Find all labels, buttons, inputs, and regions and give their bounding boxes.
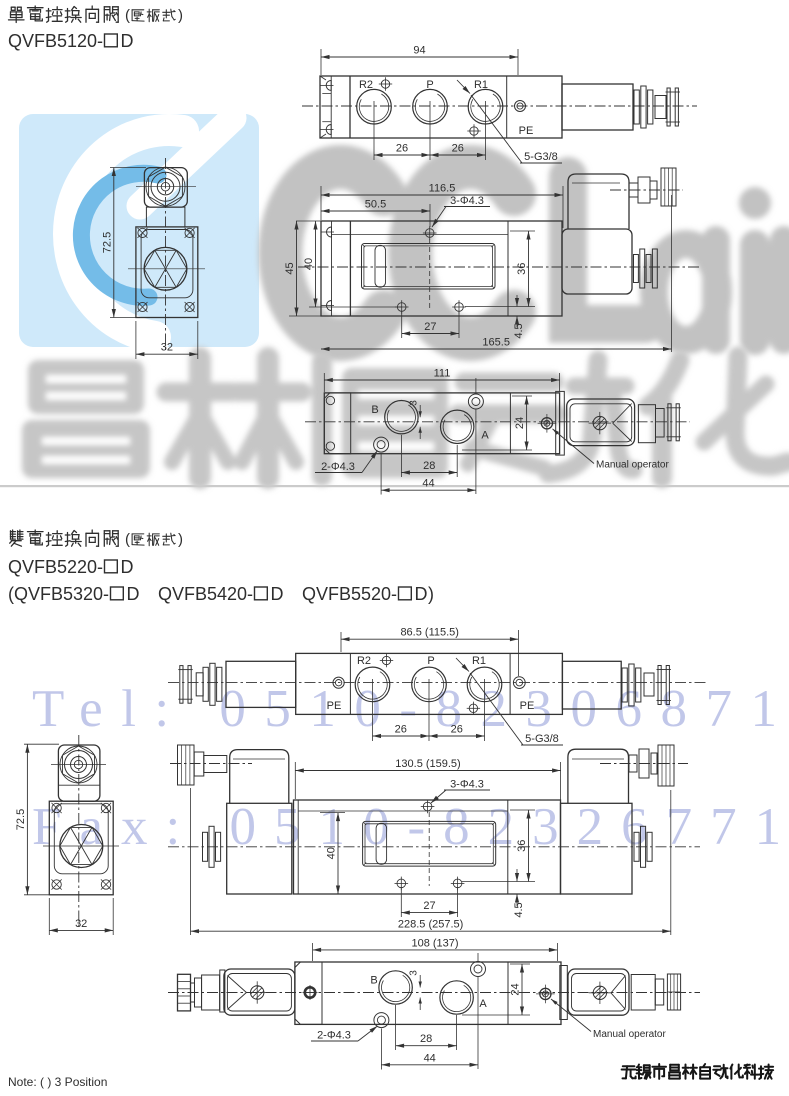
svg-text:(: ( — [125, 531, 130, 548]
svg-text:27: 27 — [424, 321, 436, 333]
svg-text:3-Φ4.3: 3-Φ4.3 — [450, 779, 484, 791]
svg-text:QVFB5220-: QVFB5220- — [8, 557, 103, 577]
svg-text:(QVFB5320-: (QVFB5320- — [8, 584, 109, 604]
svg-text:PE: PE — [519, 125, 534, 137]
svg-text:5-G3/8: 5-G3/8 — [524, 151, 558, 163]
svg-text:28: 28 — [423, 460, 435, 472]
svg-text:): ) — [178, 7, 183, 24]
svg-text:32: 32 — [161, 342, 173, 354]
svg-text:116.5: 116.5 — [429, 183, 456, 195]
svg-text:72.5: 72.5 — [101, 232, 113, 253]
svg-text:D: D — [127, 584, 140, 604]
svg-text:D: D — [121, 31, 134, 51]
svg-text:A: A — [481, 430, 489, 442]
svg-text:228.5 (257.5): 228.5 (257.5) — [398, 919, 463, 931]
svg-text:R2: R2 — [359, 79, 373, 91]
svg-text:40: 40 — [326, 847, 338, 859]
svg-text:27: 27 — [423, 900, 435, 912]
svg-text:28: 28 — [420, 1033, 432, 1045]
svg-text:24: 24 — [514, 417, 526, 429]
svg-text:26: 26 — [395, 724, 407, 736]
svg-text:3: 3 — [409, 400, 420, 406]
svg-text:): ) — [178, 531, 183, 548]
svg-text:44: 44 — [422, 478, 434, 490]
svg-text:36: 36 — [516, 263, 528, 275]
svg-text:QVFB5520-: QVFB5520- — [302, 584, 397, 604]
svg-text:4.5: 4.5 — [513, 323, 525, 338]
svg-text:Fax: 0510-82326771: Fax: 0510-82326771 — [32, 798, 789, 856]
svg-text:R2: R2 — [357, 655, 371, 667]
svg-text:26: 26 — [451, 724, 463, 736]
svg-text:A: A — [479, 998, 487, 1010]
svg-text:3: 3 — [409, 970, 420, 976]
svg-text:QVFB5120-: QVFB5120- — [8, 31, 103, 51]
svg-text:R1: R1 — [474, 79, 488, 91]
svg-text:45: 45 — [284, 262, 296, 274]
svg-text:P: P — [426, 79, 433, 91]
svg-text:PE: PE — [520, 700, 535, 712]
svg-text:50.5: 50.5 — [365, 199, 386, 211]
svg-text:B: B — [371, 404, 378, 416]
svg-text:32: 32 — [75, 918, 87, 930]
svg-text:B: B — [370, 975, 377, 987]
svg-text:108 (137): 108 (137) — [411, 937, 458, 949]
svg-text:4.5: 4.5 — [513, 902, 525, 917]
svg-text:PE: PE — [327, 700, 342, 712]
svg-text:(: ( — [125, 7, 130, 24]
svg-text:24: 24 — [510, 983, 522, 995]
svg-text:165.5: 165.5 — [482, 337, 510, 349]
svg-text:2-Φ4.3: 2-Φ4.3 — [317, 1030, 351, 1042]
svg-text:3-Φ4.3: 3-Φ4.3 — [450, 195, 484, 207]
svg-text:111: 111 — [434, 368, 451, 380]
svg-text:R1: R1 — [472, 655, 486, 667]
svg-text:40: 40 — [303, 258, 315, 270]
svg-text:86.5 (115.5): 86.5 (115.5) — [400, 627, 459, 639]
svg-text:Manual operator: Manual operator — [596, 460, 669, 471]
svg-text:44: 44 — [424, 1052, 436, 1064]
svg-text:5-G3/8: 5-G3/8 — [525, 733, 559, 745]
svg-text:): ) — [428, 584, 434, 604]
svg-text:P: P — [427, 655, 434, 667]
svg-text:2-Φ4.3: 2-Φ4.3 — [321, 461, 355, 473]
svg-text:72.5: 72.5 — [15, 809, 27, 830]
svg-text:36: 36 — [516, 840, 528, 852]
svg-text:Manual operator: Manual operator — [593, 1029, 666, 1040]
svg-text:94: 94 — [413, 45, 425, 57]
svg-text:26: 26 — [396, 143, 408, 155]
svg-text:QVFB5420-: QVFB5420- — [158, 584, 253, 604]
svg-text:D: D — [415, 584, 428, 604]
svg-text:26: 26 — [452, 143, 464, 155]
svg-text:130.5 (159.5): 130.5 (159.5) — [395, 758, 460, 770]
svg-text:Tel: 0510-82306871: Tel: 0510-82306871 — [32, 680, 789, 738]
svg-text:D: D — [121, 557, 134, 577]
svg-text:D: D — [271, 584, 284, 604]
svg-text:Note: ( ) 3 Position: Note: ( ) 3 Position — [8, 1075, 107, 1089]
